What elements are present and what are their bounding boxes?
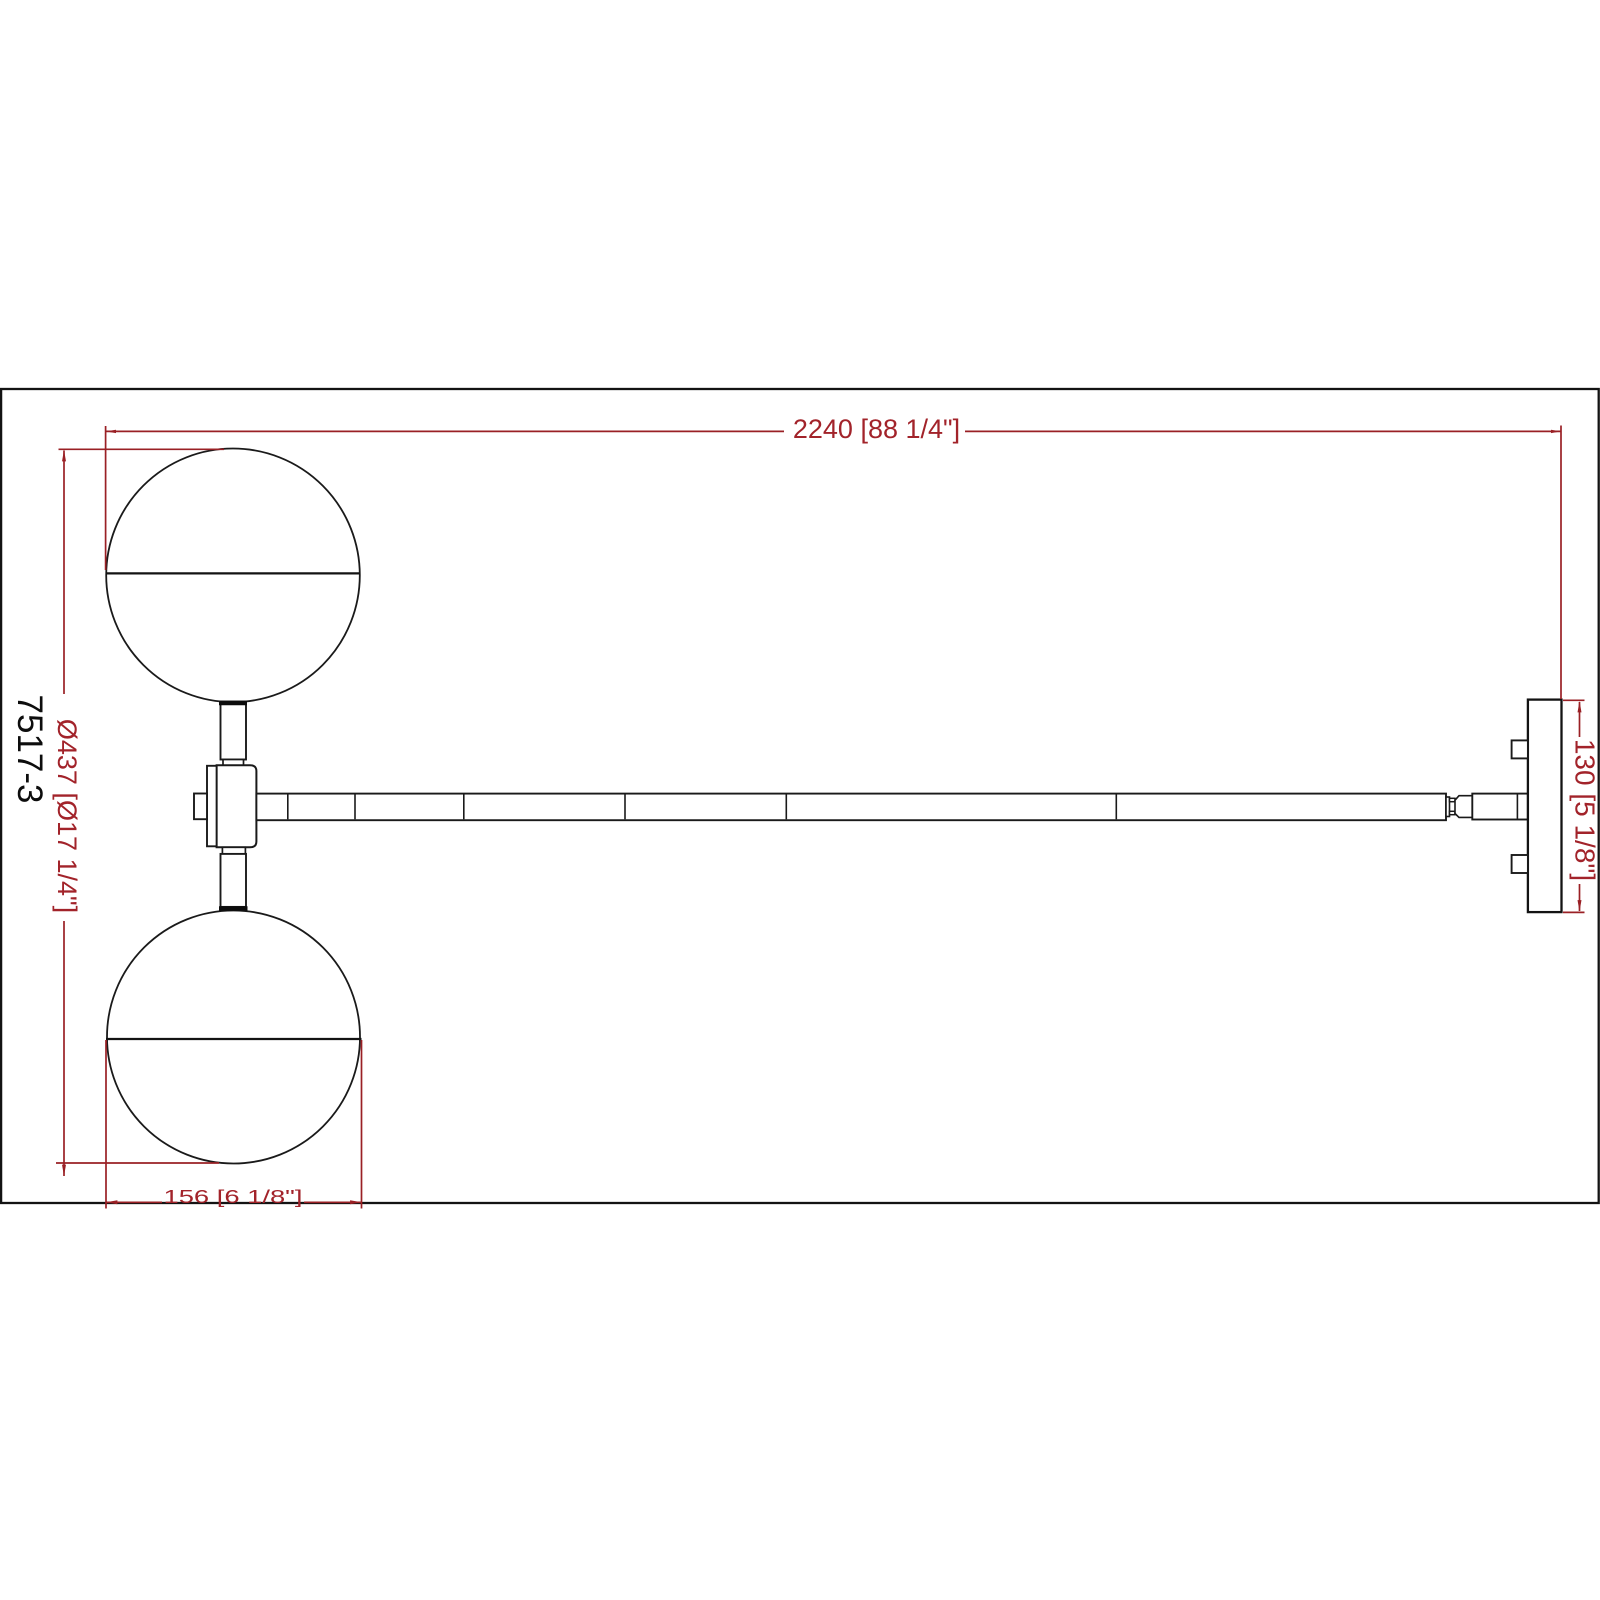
svg-text:130 [5 1/8"]: 130 [5 1/8"] — [1570, 739, 1600, 881]
svg-text:156 [6 1/8"]: 156 [6 1/8"] — [164, 1187, 303, 1207]
svg-text:Ø437 [Ø17 1/4"]: Ø437 [Ø17 1/4"] — [52, 719, 82, 913]
svg-text:7517-3: 7517-3 — [10, 695, 49, 804]
svg-text:2240 [88 1/4"]: 2240 [88 1/4"] — [793, 414, 960, 444]
